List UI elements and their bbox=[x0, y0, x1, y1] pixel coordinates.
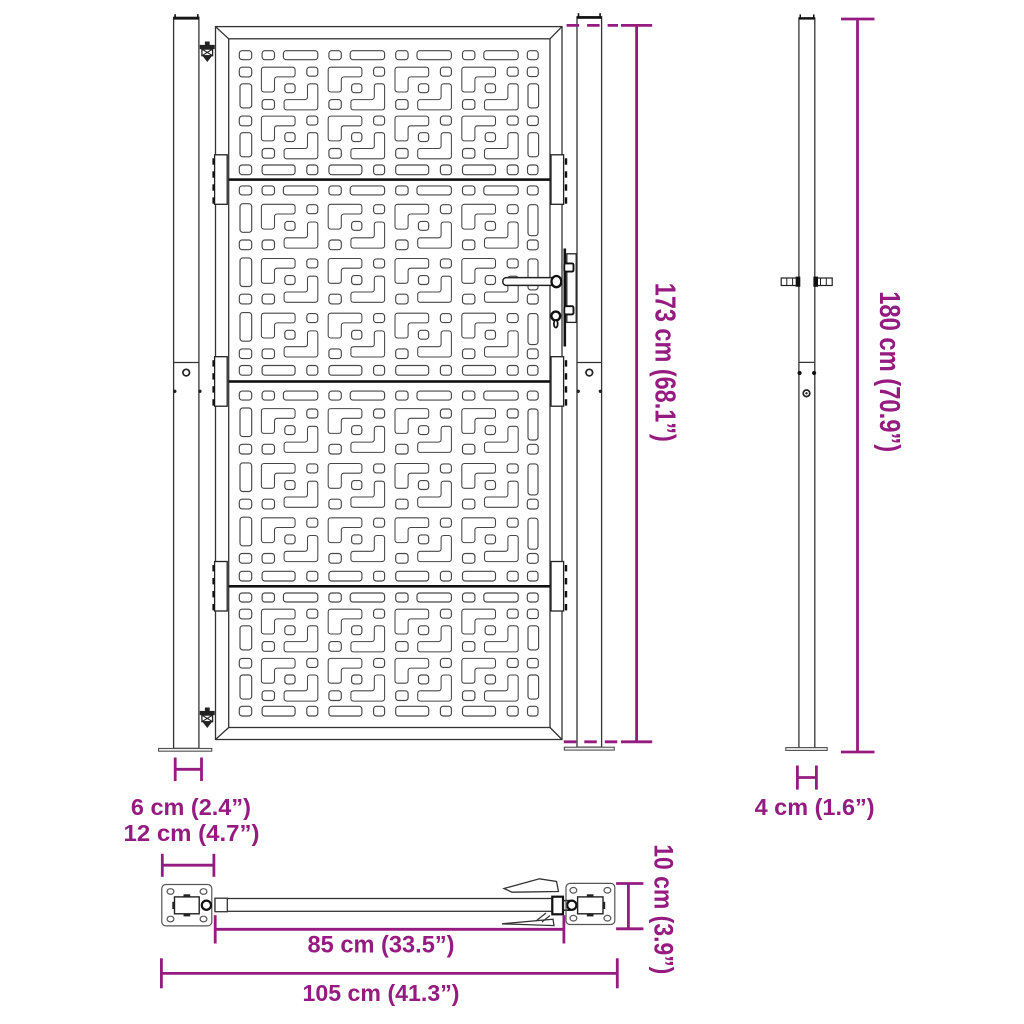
svg-text:10 cm (3.9”): 10 cm (3.9”) bbox=[649, 844, 679, 974]
svg-text:12 cm (4.7”): 12 cm (4.7”) bbox=[124, 820, 260, 846]
svg-text:6 cm (2.4”): 6 cm (2.4”) bbox=[131, 794, 251, 820]
svg-text:180 cm (70.9”): 180 cm (70.9”) bbox=[873, 291, 905, 452]
svg-text:173 cm (68.1”): 173 cm (68.1”) bbox=[648, 283, 680, 442]
svg-text:105 cm (41.3”): 105 cm (41.3”) bbox=[303, 980, 460, 1006]
svg-text:4 cm (1.6”): 4 cm (1.6”) bbox=[755, 794, 875, 820]
svg-text:85 cm (33.5”): 85 cm (33.5”) bbox=[308, 931, 455, 958]
